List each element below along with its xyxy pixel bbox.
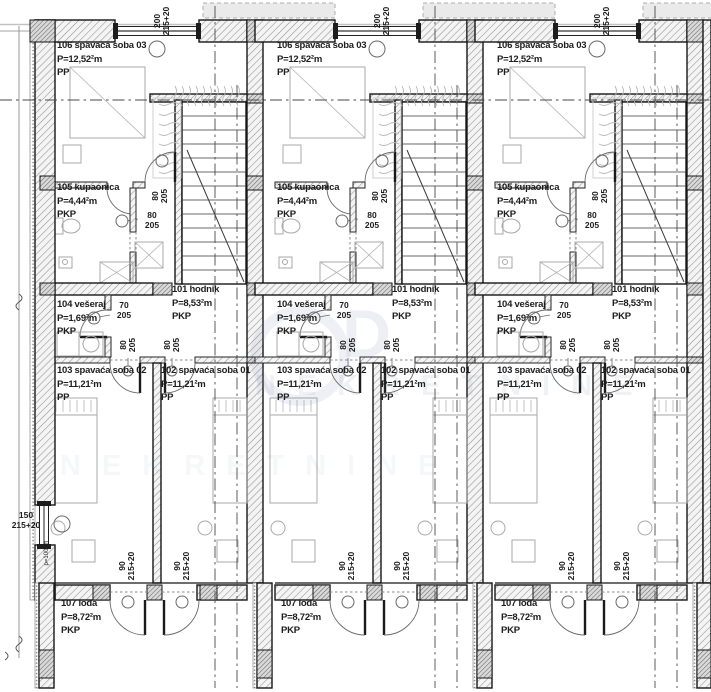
room-area: P=8,72²m bbox=[281, 611, 321, 625]
dim-laundry-door: 70205 bbox=[551, 300, 577, 320]
room-finish: PKP bbox=[277, 208, 339, 222]
room-label-bedroom02: 103 spavaća soba 02 P=11,21²m PP bbox=[277, 364, 366, 405]
room-area: P=11,21²m bbox=[601, 378, 690, 392]
dim-top-window: 200215+20 bbox=[593, 2, 611, 40]
room-label-bedroom03: 106 spavaća soba 03 P=12,52²m PP bbox=[57, 39, 146, 80]
room-label-hallway: 101 hodnik P=8,53²m PKP bbox=[612, 283, 659, 324]
room-label-hallway: 101 hodnik P=8,53²m PKP bbox=[172, 283, 219, 324]
room-label-loggia: 107 lođa P=8,72²m PKP bbox=[61, 597, 101, 638]
room-area: P=8,53²m bbox=[172, 297, 219, 311]
dim-bathroom-door: 80205 bbox=[359, 210, 385, 230]
room-area: P=4,44²m bbox=[57, 195, 119, 209]
room-area: P=8,72²m bbox=[61, 611, 101, 625]
room-area: P=12,52²m bbox=[277, 53, 366, 67]
room-number-name: 106 spavaća soba 03 bbox=[57, 39, 146, 53]
room-finish: PP bbox=[381, 391, 470, 405]
architectural-floor-plan: D NEKRETNINE NEKRETNINE 106 spavaća soba… bbox=[0, 0, 711, 692]
room-finish: PP bbox=[601, 391, 690, 405]
room-area: P=11,21²m bbox=[497, 378, 586, 392]
room-number-name: 102 spavaća soba 01 bbox=[381, 364, 470, 378]
dim-loggia-door-left: 90215+20 bbox=[558, 544, 576, 588]
room-label-bedroom03: 106 spavaća soba 03 P=12,52²m PP bbox=[497, 39, 586, 80]
room-finish: PKP bbox=[57, 208, 119, 222]
room-finish: PKP bbox=[501, 624, 541, 638]
room-number-name: 104 vešeraj bbox=[497, 298, 546, 312]
dim-bedroom01-door: 80205 bbox=[603, 332, 621, 358]
dim-bedroom03-door: 80205 bbox=[371, 182, 389, 210]
room-label-bathroom: 105 kupaonica P=4,44²m PKP bbox=[277, 181, 339, 222]
dim-bathroom-door: 80205 bbox=[579, 210, 605, 230]
room-number-name: 101 hodnik bbox=[612, 283, 659, 297]
dim-loggia-door-right: 90215+20 bbox=[613, 544, 631, 588]
room-finish: PKP bbox=[172, 310, 219, 324]
room-area: P=11,21²m bbox=[57, 378, 146, 392]
room-number-name: 103 spavaća soba 02 bbox=[497, 364, 586, 378]
room-number-name: 105 kupaonica bbox=[277, 181, 339, 195]
left-dimension-line bbox=[5, 26, 22, 660]
room-number-name: 106 spavaća soba 03 bbox=[277, 39, 366, 53]
room-label-loggia: 107 lođa P=8,72²m PKP bbox=[281, 597, 321, 638]
room-label-bedroom02: 103 spavaća soba 02 P=11,21²m PP bbox=[497, 364, 586, 405]
dim-left-window: 150215+20 bbox=[4, 510, 48, 530]
room-number-name: 101 hodnik bbox=[392, 283, 439, 297]
room-number-name: 102 spavaća soba 01 bbox=[601, 364, 690, 378]
dim-bedroom02-door: 80205 bbox=[559, 332, 577, 358]
dim-left-window-parapet: p=100cm bbox=[44, 538, 52, 568]
room-finish: PKP bbox=[281, 624, 321, 638]
room-number-name: 103 spavaća soba 02 bbox=[277, 364, 366, 378]
room-number-name: 103 spavaća soba 02 bbox=[57, 364, 146, 378]
room-finish: PP bbox=[497, 391, 586, 405]
room-area: P=1,69²m bbox=[57, 312, 106, 326]
dim-loggia-door-right: 90215+20 bbox=[393, 544, 411, 588]
dim-laundry-door: 70205 bbox=[331, 300, 357, 320]
dim-bedroom02-door: 80205 bbox=[339, 332, 357, 358]
dim-bedroom03-door: 80205 bbox=[151, 182, 169, 210]
room-finish: PP bbox=[161, 391, 250, 405]
room-label-bedroom01: 102 spavaća soba 01 P=11,21²m PP bbox=[161, 364, 250, 405]
room-finish: PKP bbox=[277, 325, 326, 339]
room-number-name: 104 vešeraj bbox=[57, 298, 106, 312]
room-number-name: 102 spavaća soba 01 bbox=[161, 364, 250, 378]
room-number-name: 107 lođa bbox=[61, 597, 101, 611]
room-finish: PP bbox=[57, 66, 146, 80]
unit-3: 106 spavaća soba 03 P=12,52²m PP 105 kup… bbox=[475, 0, 707, 692]
room-finish: PKP bbox=[392, 310, 439, 324]
room-label-bedroom01: 102 spavaća soba 01 P=11,21²m PP bbox=[381, 364, 470, 405]
dim-bedroom01-door: 80205 bbox=[383, 332, 401, 358]
room-number-name: 105 kupaonica bbox=[497, 181, 559, 195]
room-finish: PP bbox=[277, 391, 366, 405]
room-area: P=11,21²m bbox=[277, 378, 366, 392]
room-area: P=12,52²m bbox=[57, 53, 146, 67]
room-finish: PP bbox=[497, 66, 586, 80]
room-number-name: 105 kupaonica bbox=[57, 181, 119, 195]
dim-bedroom02-door: 80205 bbox=[119, 332, 137, 358]
dim-laundry-door: 70205 bbox=[111, 300, 137, 320]
dim-bedroom03-door: 80205 bbox=[591, 182, 609, 210]
room-area: P=1,69²m bbox=[277, 312, 326, 326]
room-label-laundry: 104 vešeraj P=1,69²m PKP bbox=[57, 298, 106, 339]
dim-loggia-door-left: 90215+20 bbox=[338, 544, 356, 588]
room-finish: PKP bbox=[61, 624, 101, 638]
room-area: P=8,53²m bbox=[612, 297, 659, 311]
unit-1: 106 spavaća soba 03 P=12,52²m PP 105 kup… bbox=[35, 0, 267, 692]
room-label-bathroom: 105 kupaonica P=4,44²m PKP bbox=[497, 181, 559, 222]
room-number-name: 104 vešeraj bbox=[277, 298, 326, 312]
room-label-hallway: 101 hodnik P=8,53²m PKP bbox=[392, 283, 439, 324]
room-label-bedroom02: 103 spavaća soba 02 P=11,21²m PP bbox=[57, 364, 146, 405]
dim-loggia-door-right: 90215+20 bbox=[173, 544, 191, 588]
dim-bathroom-door: 80205 bbox=[139, 210, 165, 230]
dim-loggia-door-left: 90215+20 bbox=[118, 544, 136, 588]
room-finish: PKP bbox=[57, 325, 106, 339]
room-number-name: 106 spavaća soba 03 bbox=[497, 39, 586, 53]
room-label-laundry: 104 vešeraj P=1,69²m PKP bbox=[277, 298, 326, 339]
dim-bedroom01-door: 80205 bbox=[163, 332, 181, 358]
room-area: P=11,21²m bbox=[381, 378, 470, 392]
room-label-loggia: 107 lođa P=8,72²m PKP bbox=[501, 597, 541, 638]
room-label-bedroom03: 106 spavaća soba 03 P=12,52²m PP bbox=[277, 39, 366, 80]
dim-top-window: 200215+20 bbox=[153, 2, 171, 40]
room-label-laundry: 104 vešeraj P=1,69²m PKP bbox=[497, 298, 546, 339]
room-finish: PKP bbox=[612, 310, 659, 324]
unit-2: 106 spavaća soba 03 P=12,52²m PP 105 kup… bbox=[255, 0, 487, 692]
room-area: P=4,44²m bbox=[497, 195, 559, 209]
room-area: P=8,53²m bbox=[392, 297, 439, 311]
room-finish: PP bbox=[277, 66, 366, 80]
room-number-name: 107 lođa bbox=[281, 597, 321, 611]
room-area: P=1,69²m bbox=[497, 312, 546, 326]
room-finish: PP bbox=[57, 391, 146, 405]
room-number-name: 101 hodnik bbox=[172, 283, 219, 297]
room-area: P=8,72²m bbox=[501, 611, 541, 625]
room-area: P=12,52²m bbox=[497, 53, 586, 67]
room-finish: PKP bbox=[497, 208, 559, 222]
room-label-bedroom01: 102 spavaća soba 01 P=11,21²m PP bbox=[601, 364, 690, 405]
room-area: P=4,44²m bbox=[277, 195, 339, 209]
room-area: P=11,21²m bbox=[161, 378, 250, 392]
room-finish: PKP bbox=[497, 325, 546, 339]
room-label-bathroom: 105 kupaonica P=4,44²m PKP bbox=[57, 181, 119, 222]
dim-top-window: 200215+20 bbox=[373, 2, 391, 40]
room-number-name: 107 lođa bbox=[501, 597, 541, 611]
